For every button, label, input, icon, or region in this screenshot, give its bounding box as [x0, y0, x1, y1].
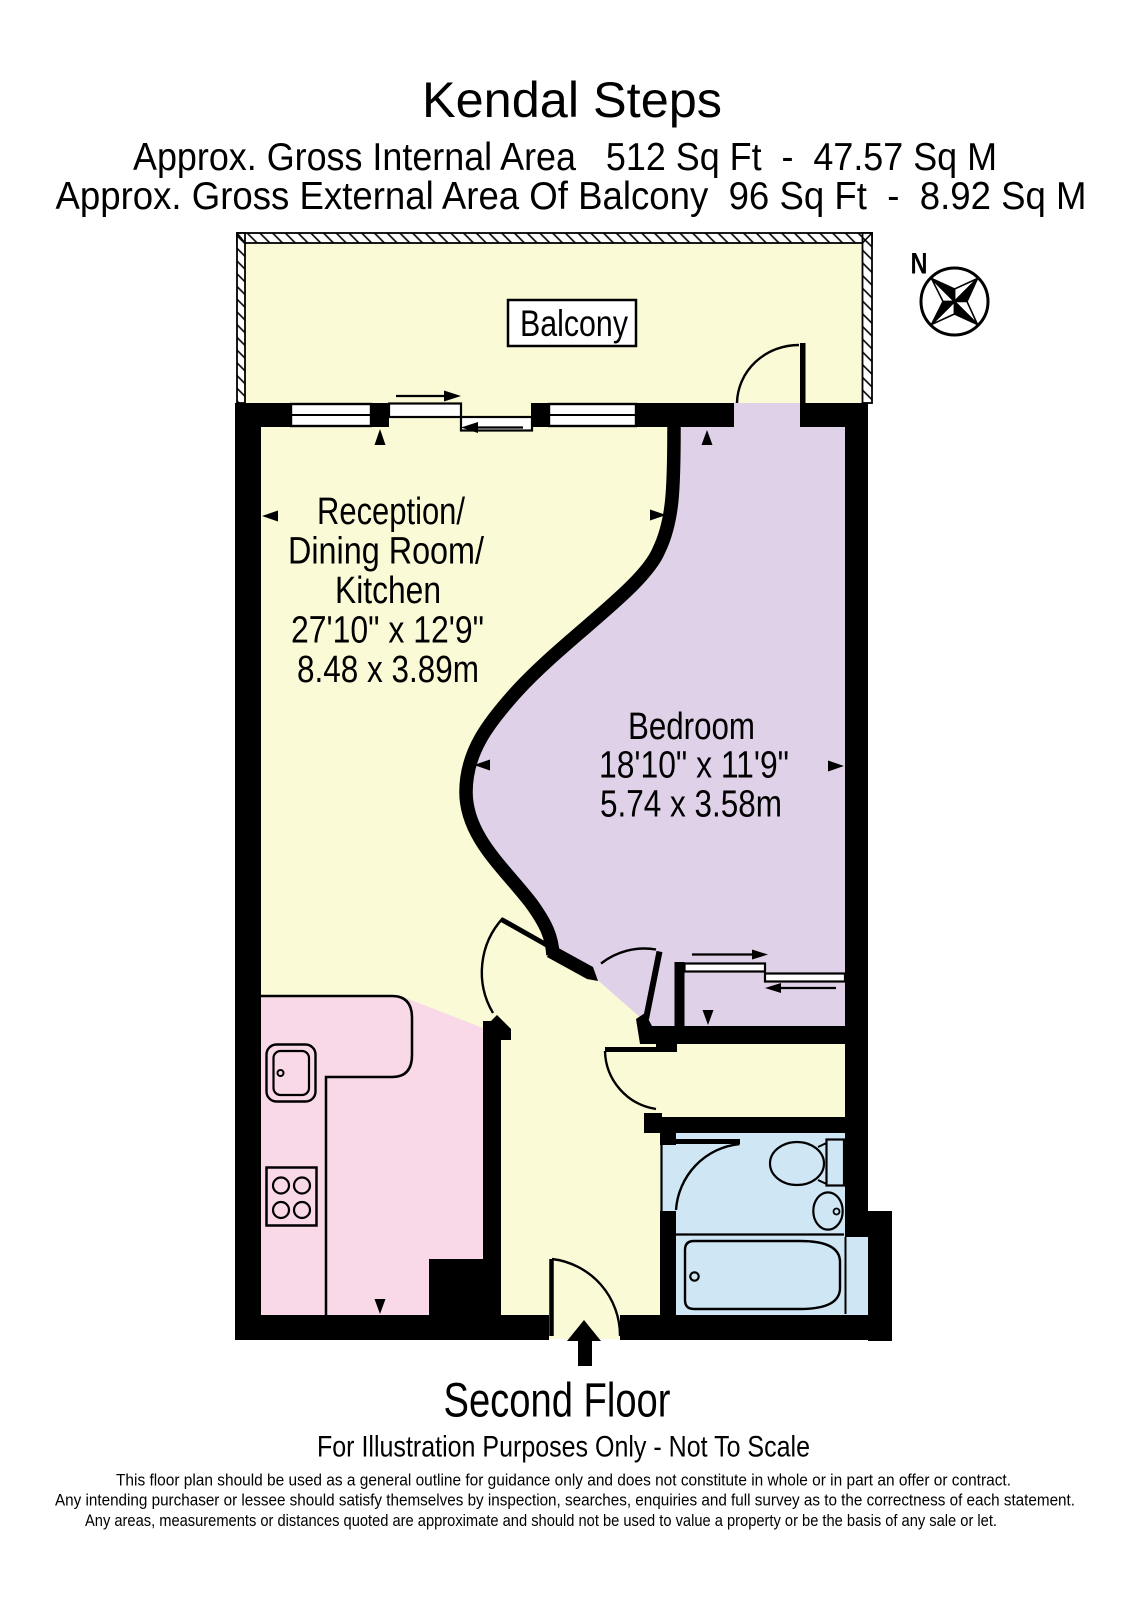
svg-text:This floor plan should be used: This floor plan should be used as a gene… — [116, 1472, 1011, 1490]
svg-text:Any areas, measurements or dis: Any areas, measurements or distances quo… — [85, 1512, 997, 1530]
svg-text:Any intending purchaser or les: Any intending purchaser or lessee should… — [55, 1492, 1075, 1510]
svg-text:Kitchen: Kitchen — [335, 570, 441, 612]
svg-text:N: N — [911, 248, 928, 281]
svg-text:Dining Room/: Dining Room/ — [288, 531, 484, 573]
svg-text:5.74 x 3.58m: 5.74 x 3.58m — [600, 784, 782, 826]
svg-text:Balcony: Balcony — [520, 303, 628, 344]
svg-text:Kendal Steps: Kendal Steps — [422, 72, 722, 128]
svg-text:For Illustration Purposes Only: For Illustration Purposes Only - Not To … — [317, 1431, 810, 1464]
svg-text:Second Floor: Second Floor — [444, 1375, 671, 1428]
svg-text:Approx. Gross External Area Of: Approx. Gross External Area Of Balcony 9… — [56, 175, 1087, 218]
svg-text:8.48 x 3.89m: 8.48 x 3.89m — [297, 649, 479, 691]
svg-text:18'10" x 11'9": 18'10" x 11'9" — [599, 745, 789, 787]
svg-text:27'10" x 12'9": 27'10" x 12'9" — [291, 610, 484, 652]
svg-text:Reception/: Reception/ — [317, 491, 465, 533]
svg-text:Approx. Gross Internal Area: Approx. Gross Internal Area 512 Sq Ft - … — [133, 136, 997, 179]
svg-text:Bedroom: Bedroom — [628, 706, 755, 748]
